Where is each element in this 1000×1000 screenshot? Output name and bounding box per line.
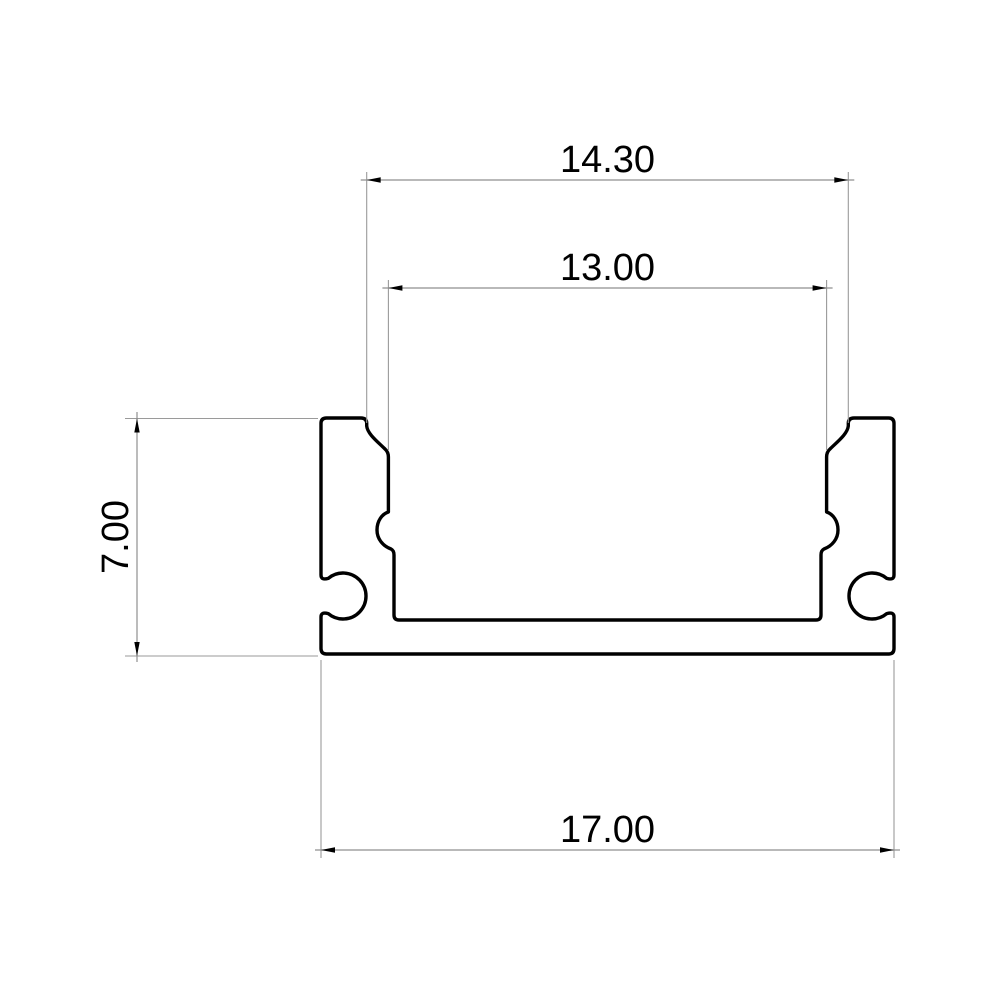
cad-drawing: 14.30 13.00 7.00 17.00: [0, 0, 1000, 1000]
arrowhead-right: [880, 847, 894, 852]
arrowhead-left: [321, 847, 335, 852]
drawing-canvas: 14.30 13.00 7.00 17.00: [0, 0, 1000, 1000]
dimension-label: 14.30: [560, 139, 655, 181]
dimension-label: 13.00: [560, 247, 655, 289]
arrowhead-right: [834, 177, 848, 182]
dimension-label: 17.00: [560, 809, 655, 851]
arrowhead-right: [813, 285, 827, 290]
dimension-overall-width: 17.00: [315, 660, 900, 858]
arrowhead-top: [134, 419, 139, 433]
arrowhead-left: [388, 285, 402, 290]
dimension-inner-channel-width: 13.00: [382, 247, 832, 450]
dimension-overall-height: 7.00: [95, 412, 318, 662]
arrowhead-bottom: [134, 642, 139, 656]
arrowhead-left: [367, 177, 381, 182]
profile-outline: [321, 418, 894, 654]
dimension-label: 7.00: [95, 500, 137, 574]
